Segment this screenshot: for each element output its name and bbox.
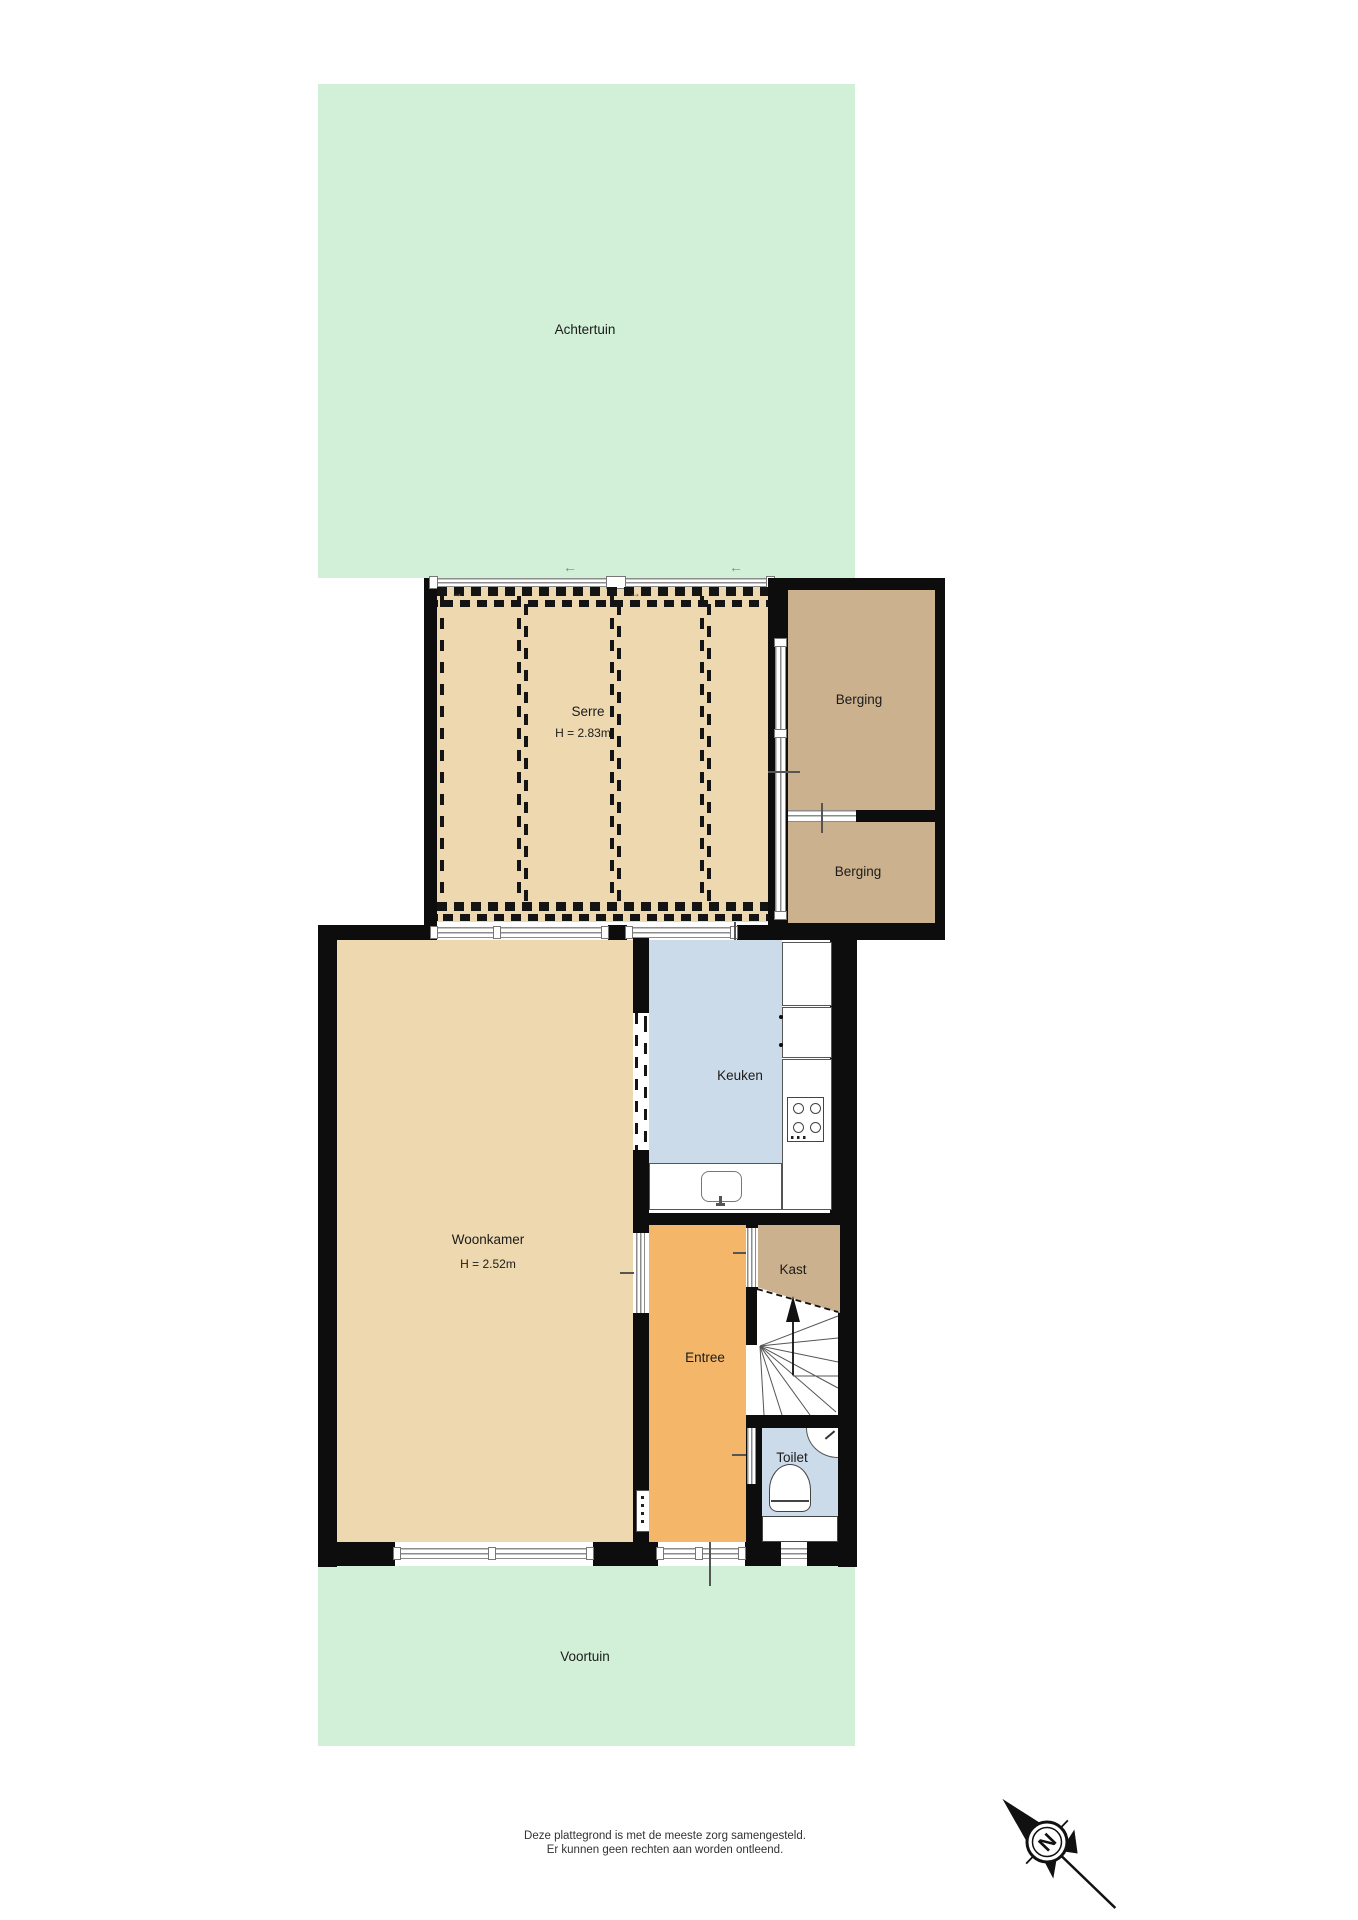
- window-mullion: [601, 926, 609, 939]
- rear-window-kitchen: [627, 927, 737, 938]
- house-front-wall: [745, 1542, 781, 1566]
- slide-direction-arrow-icon: →: [629, 588, 641, 598]
- front-garden-label: Voortuin: [505, 1649, 665, 1664]
- room-serre-label: Serre: [548, 704, 628, 719]
- room-kast-label: Kast: [753, 1262, 833, 1277]
- floor-plan: Achtertuin Voortuin ← ← → → Serre H = 2.…: [0, 0, 1358, 1920]
- window-mullion: [625, 926, 633, 939]
- slide-direction-arrow-icon: →: [451, 588, 463, 598]
- closet-door: [747, 1228, 756, 1287]
- window-mullion: [586, 1547, 594, 1560]
- serre-panel-divider: [707, 596, 711, 904]
- window-mullion: [774, 729, 787, 738]
- living-hall-door: [636, 1233, 645, 1313]
- footer-disclaimer-line1: Deze plattegrond is met de meeste zorg s…: [365, 1829, 965, 1843]
- slide-direction-arrow-icon: ←: [563, 562, 577, 572]
- serre-glass-wall-bottom: [437, 914, 775, 921]
- living-kitchen-wall: [633, 1150, 649, 1213]
- room-serre: [437, 580, 775, 922]
- toilet-seat-line: [771, 1500, 809, 1502]
- window-mullion: [488, 1547, 496, 1560]
- kitchen-cabinet: [782, 942, 832, 1006]
- room-entree: [649, 1225, 746, 1542]
- meter-cupboard-dots: [641, 1496, 644, 1524]
- room-keuken: [649, 940, 782, 1163]
- living-kitchen-wall: [633, 938, 649, 1013]
- window-mullion: [738, 1547, 746, 1560]
- sink-tap: [716, 1203, 725, 1206]
- window-mullion: [695, 1547, 703, 1560]
- serre-panel-divider: [617, 596, 621, 904]
- room-woonkamer-height: H = 2.52m: [418, 1257, 558, 1271]
- living-kitchen-opening: [635, 1013, 638, 1150]
- measure-tick: [821, 803, 823, 833]
- serre-panel-divider: [610, 596, 614, 904]
- room-woonkamer-label: Woonkamer: [408, 1232, 568, 1247]
- house-right-wall-upper: [830, 938, 857, 1215]
- window-mullion: [493, 926, 501, 939]
- window-mullion: [774, 911, 787, 920]
- compass-north-icon: N: [975, 1772, 1120, 1917]
- back-garden-label: Achtertuin: [505, 322, 665, 337]
- serre-sliding-track: [431, 578, 777, 587]
- slide-direction-arrow-icon: ←: [729, 562, 743, 572]
- rear-window-living: [433, 927, 608, 938]
- measure-tick: [620, 1272, 634, 1274]
- storage-window-band: [775, 640, 786, 920]
- room-berging-bottom-label: Berging: [808, 864, 908, 879]
- toilet-icon: [769, 1464, 811, 1512]
- living-kitchen-opening: [644, 1013, 647, 1150]
- measure-tick: [732, 1454, 746, 1456]
- kitchen-cabinet: [782, 1007, 832, 1058]
- house-rear-wall: [737, 925, 768, 940]
- house-left-wall: [318, 925, 337, 1567]
- serre-panel-divider: [524, 596, 528, 904]
- measure-tick: [768, 771, 800, 773]
- window-mullion: [393, 1547, 401, 1560]
- measure-tick: [733, 1252, 746, 1254]
- stairs-icon: [740, 1280, 860, 1420]
- stove-burner: [793, 1103, 804, 1114]
- footer-disclaimer: Deze plattegrond is met de meeste zorg s…: [365, 1829, 965, 1857]
- stove-burner: [810, 1103, 821, 1114]
- footer-disclaimer-line2: Er kunnen geen rechten aan worden ontlee…: [365, 1843, 965, 1857]
- stove-knobs: [791, 1136, 807, 1139]
- serre-glass-wall-top: [437, 600, 775, 607]
- stove-burner: [793, 1122, 804, 1133]
- cabinet-hinge: [779, 1043, 783, 1047]
- serre-panel-divider: [700, 596, 704, 904]
- room-serre-height: H = 2.83m: [523, 726, 643, 740]
- window-mullion: [774, 638, 787, 647]
- window-mullion: [430, 926, 438, 939]
- room-keuken-label: Keuken: [695, 1068, 785, 1083]
- serre-glass-wall-bottom: [437, 902, 775, 911]
- cabinet-hinge: [779, 1015, 783, 1019]
- house-front-wall: [593, 1542, 658, 1566]
- front-window-toilet: [781, 1548, 807, 1559]
- stove-burner: [810, 1122, 821, 1133]
- stairs-toilet-wall: [746, 1415, 857, 1428]
- serre-left-wall: [424, 578, 437, 940]
- toilet-cistern: [762, 1516, 838, 1542]
- kitchen-hall-wall: [633, 1213, 857, 1225]
- serre-glass-wall-top: [437, 587, 775, 596]
- house-front-wall: [807, 1542, 857, 1566]
- window-mullion: [656, 1547, 664, 1560]
- house-front-wall: [318, 1542, 395, 1566]
- serre-panel-divider: [517, 596, 521, 904]
- serre-glass-edge: [440, 596, 444, 904]
- room-berging-top-label: Berging: [809, 692, 909, 707]
